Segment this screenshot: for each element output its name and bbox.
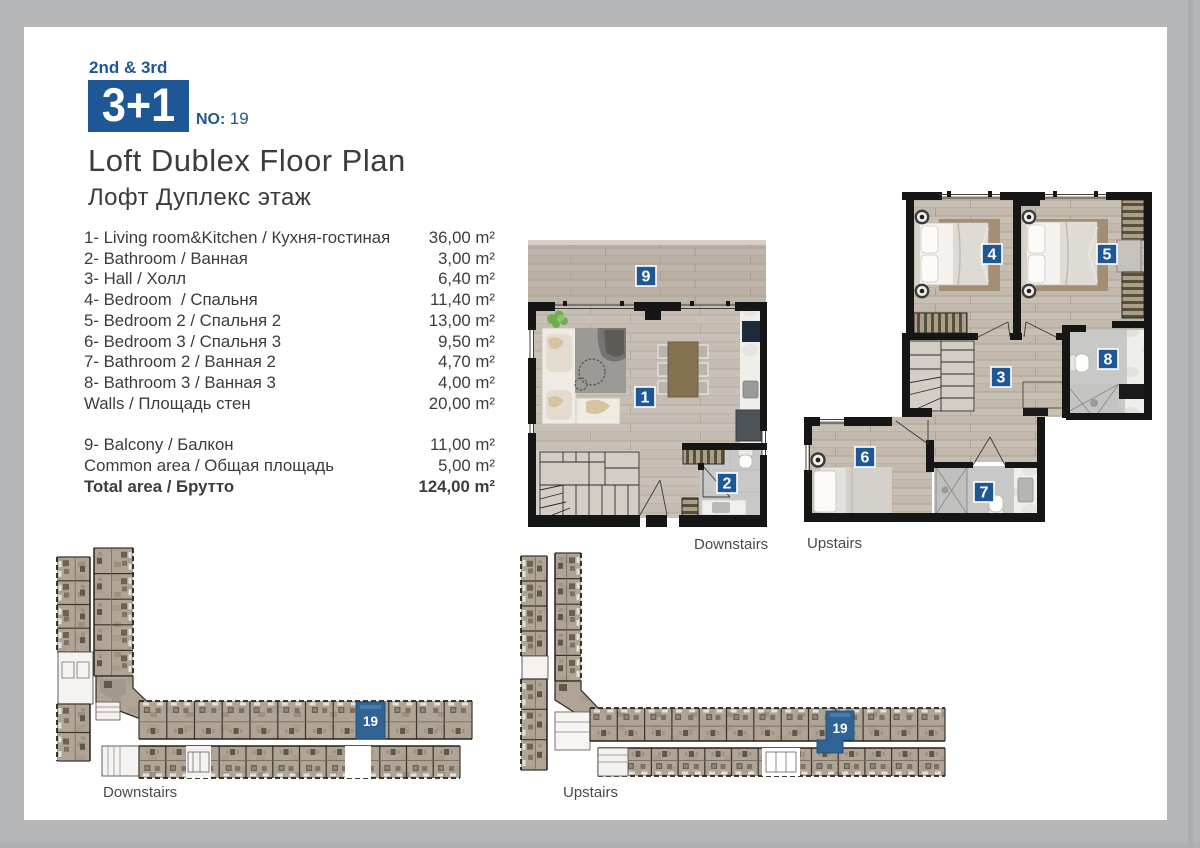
svg-text:Downstairs: Downstairs	[103, 784, 177, 801]
svg-text:9: 9	[642, 269, 651, 286]
svg-text:5: 5	[1103, 247, 1112, 264]
svg-text:1: 1	[641, 390, 650, 407]
svg-text:19: 19	[832, 721, 847, 736]
svg-text:4: 4	[988, 247, 997, 264]
svg-text:Downstairs: Downstairs	[694, 536, 768, 553]
svg-text:Upstairs: Upstairs	[563, 784, 618, 801]
svg-text:8: 8	[1104, 352, 1113, 369]
svg-text:19: 19	[363, 714, 378, 729]
svg-text:Upstairs: Upstairs	[807, 535, 862, 552]
svg-text:3: 3	[997, 370, 1006, 387]
svg-text:6: 6	[861, 450, 870, 467]
svg-text:7: 7	[980, 485, 989, 502]
svg-text:2: 2	[723, 476, 732, 493]
